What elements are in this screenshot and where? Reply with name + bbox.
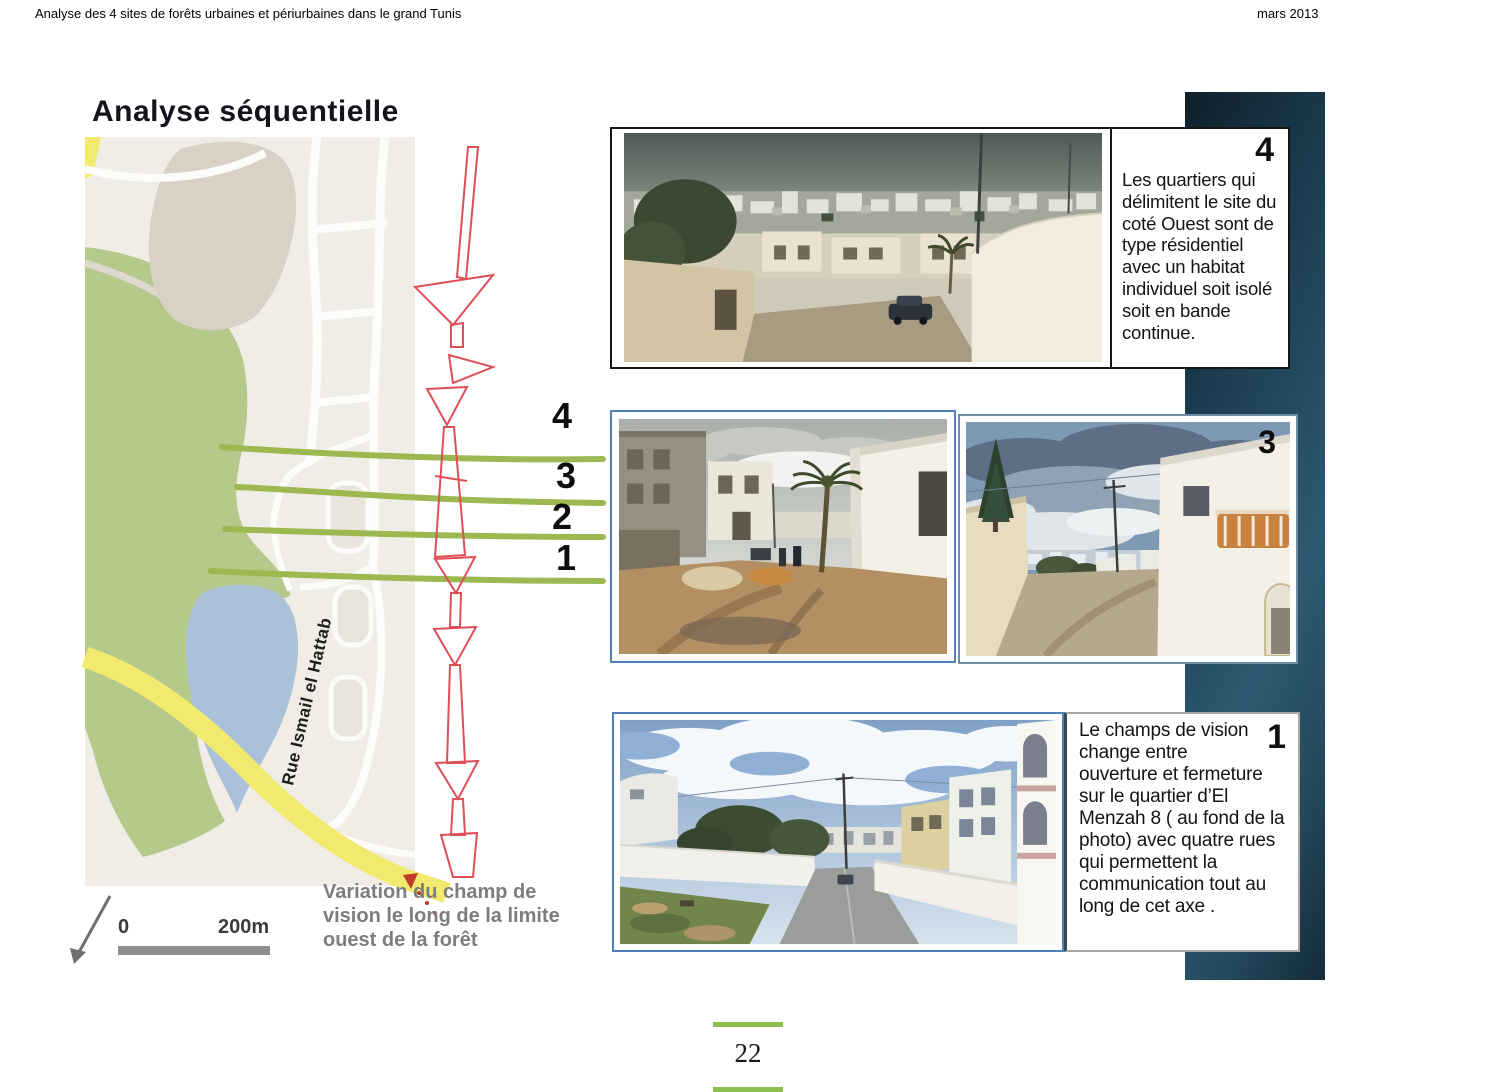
photo-3-label: 3	[1258, 424, 1276, 461]
page-title: Analyse séquentielle	[92, 95, 399, 129]
scale-zero-label: 0	[118, 916, 129, 939]
annotation-1: 1 Le champs de vision change entre ouver…	[1064, 712, 1300, 952]
map-seq-label-1: 1	[556, 540, 576, 576]
photo-sequence-3: 3	[958, 414, 1298, 664]
map-figure: 4 3 2 1 Rue Ismail el Hattab	[85, 135, 605, 965]
annotation-1-text: Le champs de vision change entre ouvertu…	[1079, 720, 1288, 918]
map-caption: Variation du champ de vision le long de …	[323, 880, 571, 952]
photo-panel-4: 4 Les quartiers qui délimitent le site d…	[610, 127, 1290, 369]
annotation-4-number: 4	[1122, 133, 1274, 167]
map-graphic	[85, 135, 605, 965]
map-seq-label-4: 4	[552, 398, 572, 434]
map-seq-label-3: 3	[556, 458, 576, 494]
header-left: Analyse des 4 sites de forêts urbaines e…	[35, 6, 461, 21]
footer-rule-bottom	[713, 1087, 783, 1092]
annotation-4: 4 Les quartiers qui délimitent le site d…	[1110, 129, 1288, 367]
photo-sequence-1	[612, 712, 1064, 952]
scale-bar	[118, 946, 270, 955]
scale-distance-label: 200m	[218, 916, 269, 939]
sightline-red-chain	[415, 147, 493, 877]
footer-rule-top	[713, 1022, 783, 1027]
map-seq-label-2: 2	[552, 499, 572, 535]
annotation-1-number: 1	[1267, 720, 1286, 754]
photo-sequence-4	[612, 129, 1110, 367]
page-number: 22	[698, 1038, 798, 1069]
annotation-4-text: Les quartiers qui délimitent le site du …	[1122, 169, 1280, 343]
photo-sequence-2	[610, 410, 956, 663]
header-right: mars 2013	[1257, 6, 1318, 21]
document-page: Analyse des 4 sites de forêts urbaines e…	[0, 0, 1500, 1092]
north-arrow-icon	[66, 890, 116, 972]
